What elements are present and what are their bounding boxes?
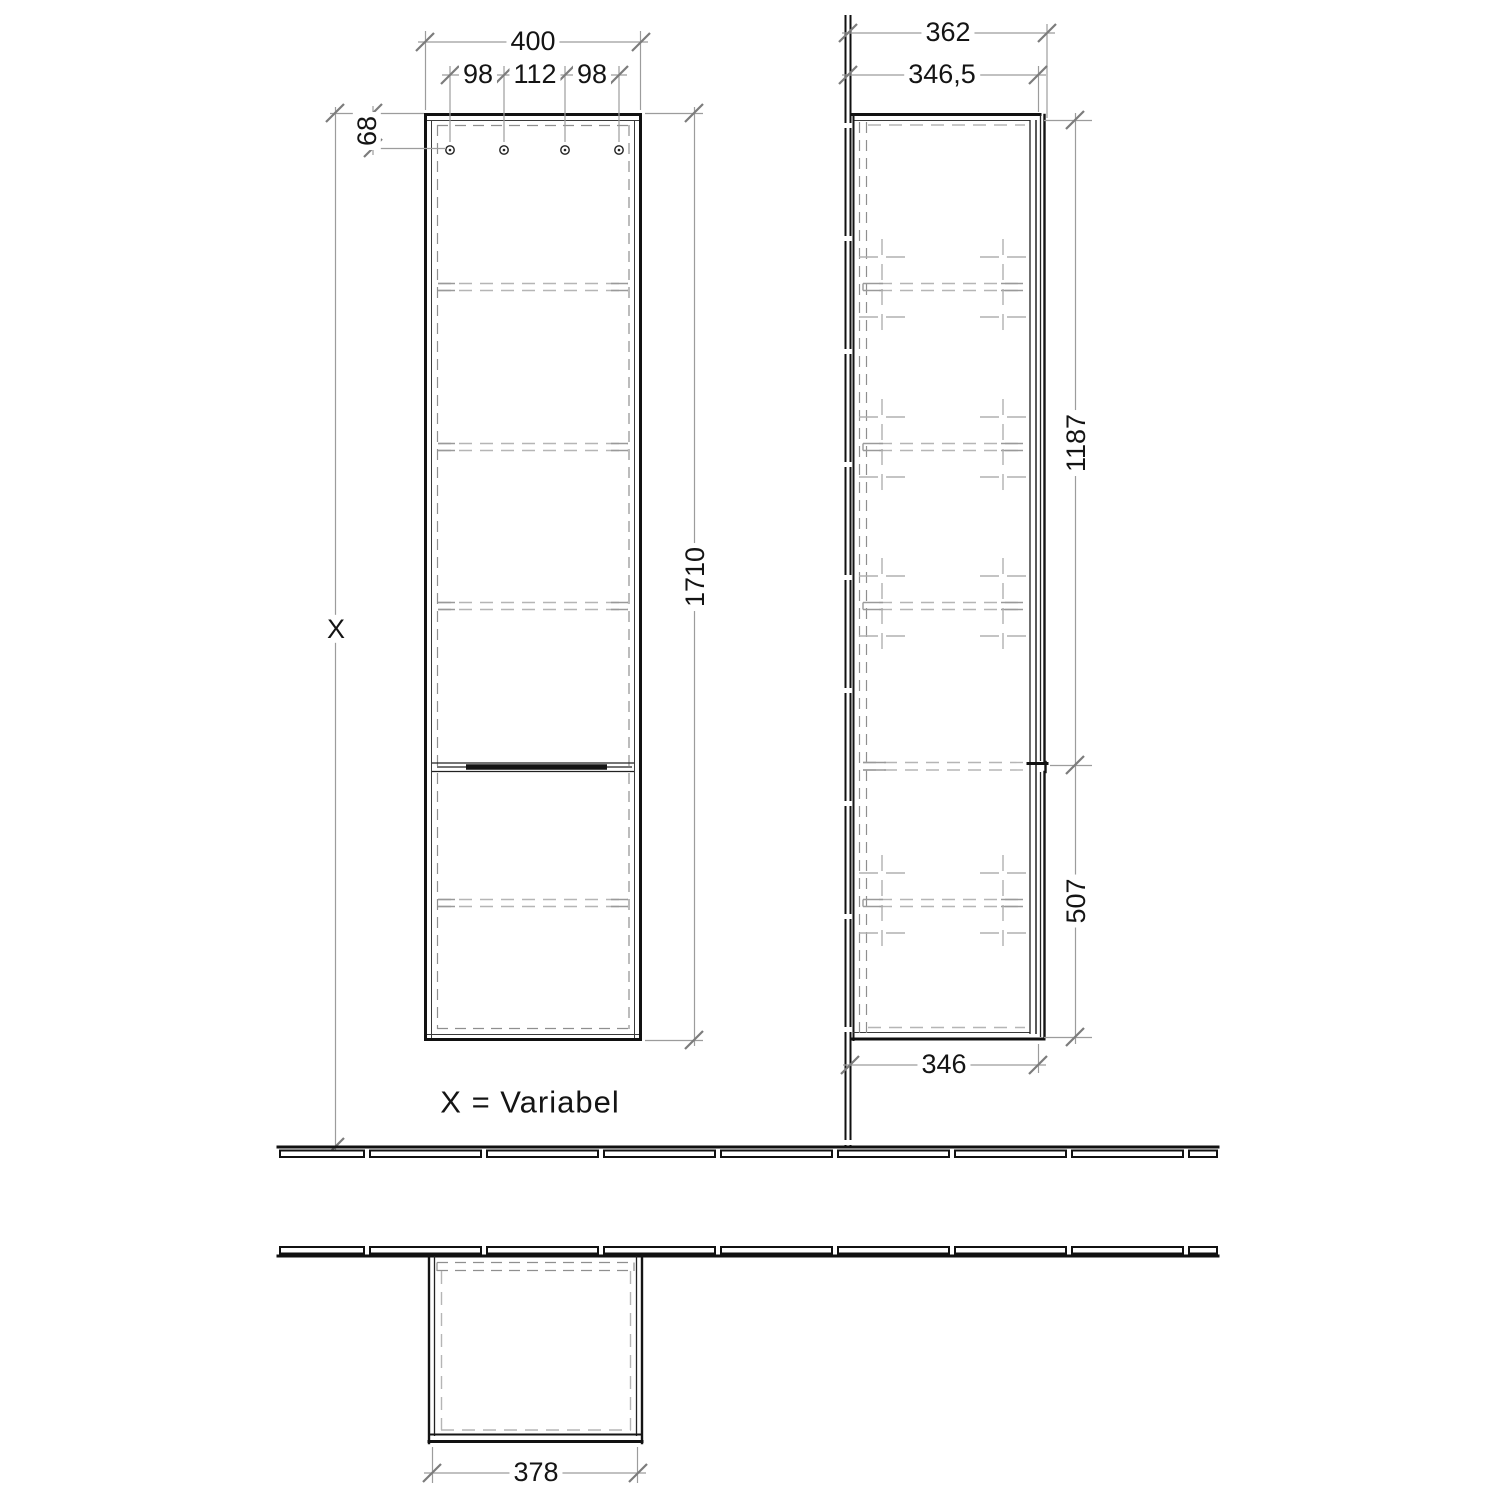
dim-overall-width: 400 <box>506 27 559 55</box>
dim-overall-depth: 362 <box>921 18 974 46</box>
side-back-panel-dashed <box>860 122 1026 1033</box>
dim-front-width: 378 <box>509 1458 562 1486</box>
dim-depth-to-body-front: 346,5 <box>904 60 980 88</box>
side-view <box>839 15 1092 1147</box>
floor-line <box>278 1147 1218 1157</box>
front-cabinet-outline <box>426 115 641 1040</box>
front-shelves-dashed <box>438 284 628 907</box>
front-dimensions <box>326 31 703 1156</box>
dim-upper-door-height: 1187 <box>1062 410 1090 476</box>
side-door-front <box>1041 115 1045 1037</box>
dim-lower-door-height: 507 <box>1062 874 1090 927</box>
side-dimensions <box>839 24 1092 1074</box>
dim-body-depth-bottom: 346 <box>917 1050 970 1078</box>
variable-height-note: X = Variabel <box>436 1087 623 1120</box>
dim-hole-pitch-center: 112 <box>509 60 560 88</box>
dim-top-to-hanger-holes: 68 <box>353 112 381 150</box>
side-handle-detail <box>1028 762 1047 772</box>
plan-cabinet <box>429 1256 642 1443</box>
dim-hole-pitch-right: 98 <box>573 60 611 88</box>
plan-wall-line <box>278 1247 1218 1256</box>
dim-cabinet-height: 1710 <box>681 543 709 611</box>
front-view <box>326 31 703 1156</box>
technical-drawing-canvas: 400 98 112 98 68 X 1710 362 346,5 1187 5… <box>0 0 1500 1500</box>
side-cabinet-outline <box>852 114 1044 1040</box>
top-view <box>278 1247 1218 1483</box>
front-door-split-and-handle <box>432 763 634 772</box>
shelf-pin-markers <box>859 239 1026 951</box>
dim-hole-pitch-left: 98 <box>459 60 497 88</box>
cabinet-drawing <box>0 0 1500 1500</box>
wall-line <box>846 15 851 1147</box>
hanger-holes <box>446 146 623 154</box>
dim-mounting-height: X <box>323 615 349 643</box>
front-door-edges-dashed <box>437 125 629 1029</box>
